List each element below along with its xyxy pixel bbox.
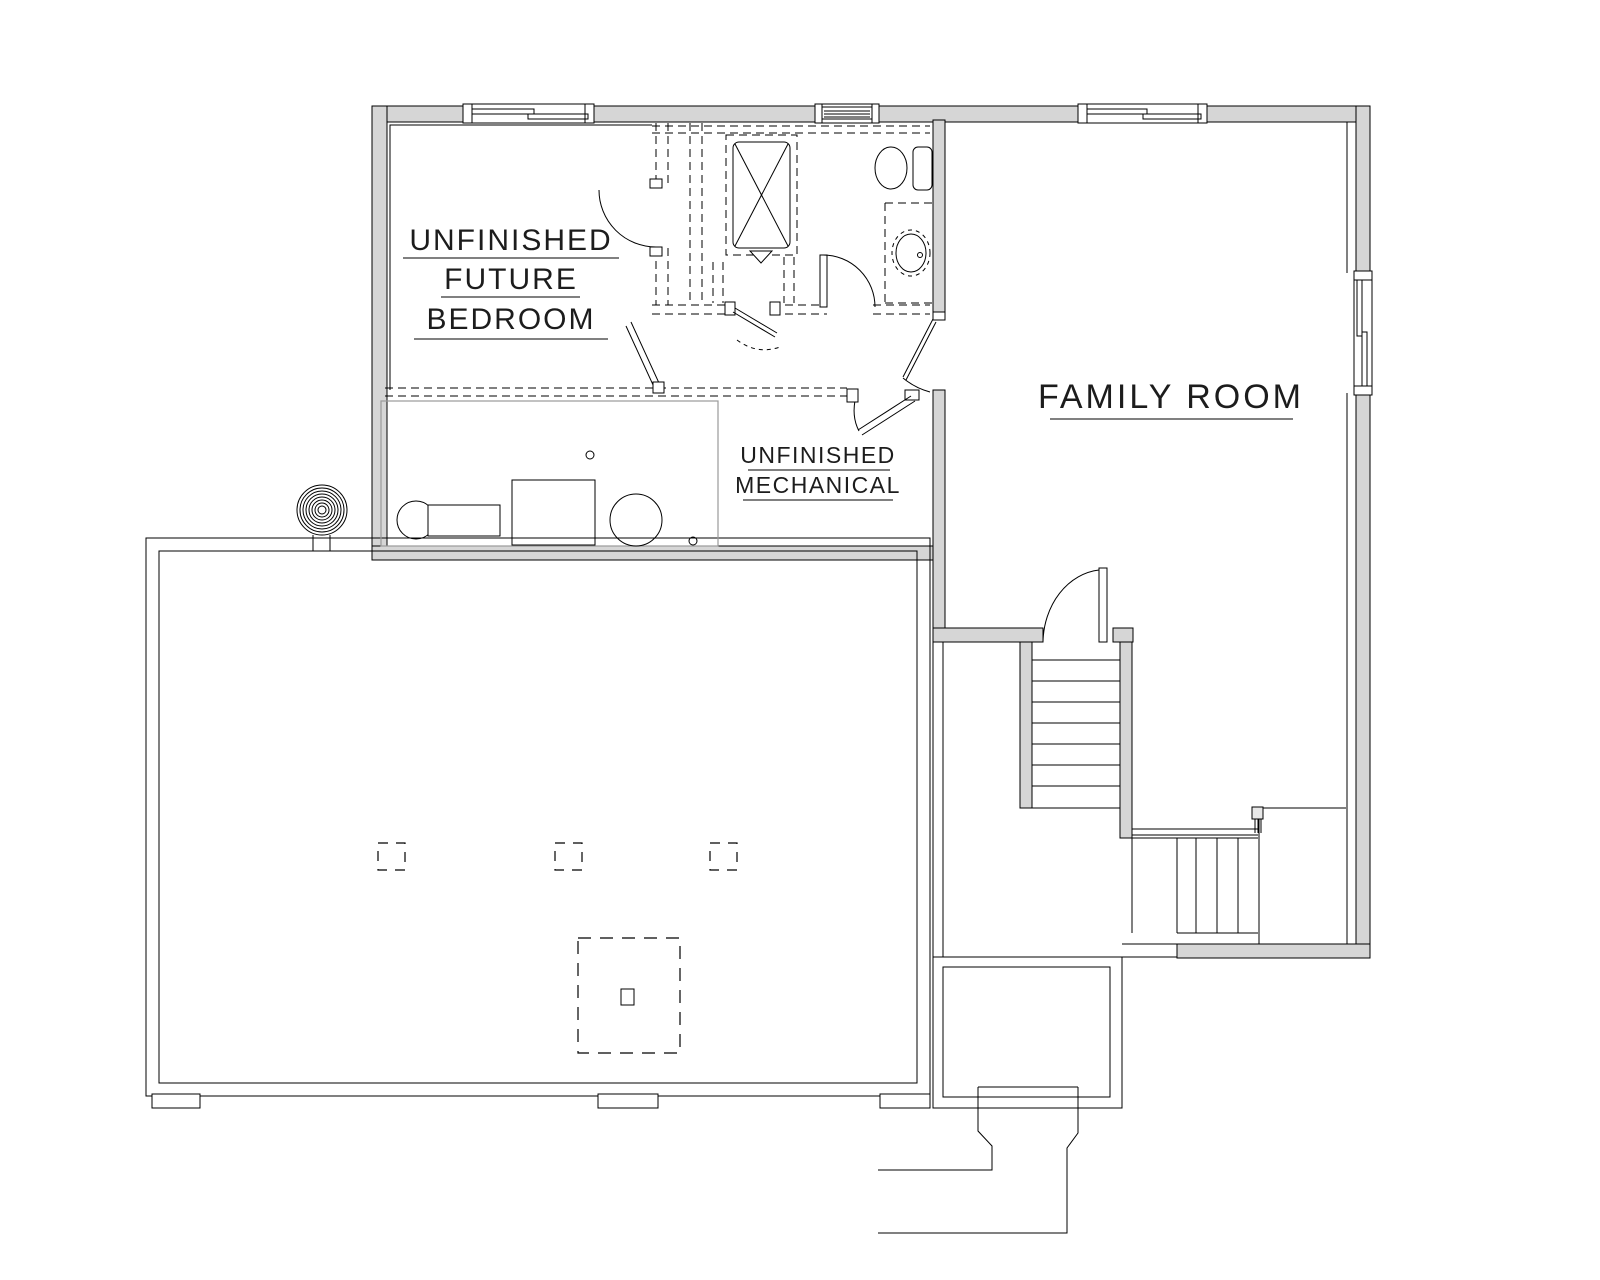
mechanical-label-line1: UNFINISHED	[740, 442, 896, 468]
bedroom-label-line1: UNFINISHED	[409, 224, 612, 257]
door-jamb-block	[725, 302, 735, 315]
mechanical-label: UNFINISHED MECHANICAL	[735, 442, 901, 500]
faucet-dot	[918, 253, 923, 258]
svg-text:FAMILY ROOM: FAMILY ROOM	[1038, 378, 1304, 416]
family-room-window-right	[1354, 271, 1372, 395]
bottom-right-exterior-wall	[1177, 944, 1370, 958]
stair-hall-wall-right	[1113, 628, 1133, 642]
column-footing-2	[555, 843, 582, 870]
floor-drain	[586, 451, 594, 459]
bedroom-label-line3: BEDROOM	[426, 303, 595, 336]
future-bath-shower	[726, 135, 797, 263]
stairwell-wall-left	[1020, 642, 1032, 808]
familyroom-stair-door	[1043, 568, 1107, 642]
expansion-tank-body	[428, 505, 500, 536]
bedroom-label: UNFINISHED FUTURE BEDROOM	[403, 224, 619, 339]
stairwell-wall-right	[1120, 642, 1132, 838]
door-jamb-block	[770, 302, 780, 315]
left-exterior-wall	[372, 106, 387, 546]
bath-door-swing	[820, 255, 875, 307]
garage-outer-wall-line	[146, 538, 930, 1096]
stair-hall-wall-left	[933, 628, 1043, 642]
right-exterior-wall-lower	[1356, 395, 1370, 944]
sump-coil	[297, 485, 347, 551]
foundation-pier-middle	[598, 1094, 658, 1108]
toilet	[875, 147, 932, 190]
bath-window	[815, 104, 879, 123]
stairs-lower-flight	[1132, 807, 1346, 944]
center-post	[621, 989, 634, 1005]
shower-door-marker	[750, 251, 772, 263]
column-footing-3	[710, 843, 737, 870]
bedroom-label-line2: FUTURE	[444, 263, 578, 296]
bath-familyroom-divider-lower	[933, 390, 945, 642]
doors	[599, 179, 1107, 642]
stairs-upper-flight	[1032, 660, 1120, 808]
floor-plan-drawing: UNFINISHED FUTURE BEDROOM FAMILY ROOM UN…	[0, 0, 1600, 1280]
mechanical-bottom-wall	[372, 546, 945, 560]
column-footings	[378, 843, 737, 1053]
bath-familyroom-divider-upper	[933, 120, 945, 320]
furnace	[512, 480, 595, 545]
mechanical-label-line2: MECHANICAL	[735, 472, 901, 498]
future-framed-walls	[385, 123, 930, 396]
right-exterior-wall-upper	[1356, 106, 1370, 273]
family-room-label: FAMILY ROOM	[1038, 378, 1304, 419]
garage-foundation	[146, 538, 930, 1108]
hall-door-leaf-left	[626, 322, 664, 393]
garage-inner-wall-line	[159, 551, 917, 1083]
bedroom-window	[463, 104, 594, 123]
column-footing-1	[378, 843, 405, 870]
foundation-pier-left	[152, 1094, 200, 1108]
center-footing-pad	[578, 938, 680, 1053]
mechanical-equipment	[381, 401, 718, 546]
vanity-sink	[885, 203, 933, 303]
foundation-pier-right	[880, 1094, 930, 1108]
hall-to-familyroom-door	[903, 312, 945, 400]
floor-plan-page: UNFINISHED FUTURE BEDROOM FAMILY ROOM UN…	[0, 0, 1600, 1280]
family-room-window-top	[1078, 104, 1207, 123]
foundation-chute	[878, 1087, 1078, 1233]
cold-storage-room	[933, 642, 1177, 1108]
